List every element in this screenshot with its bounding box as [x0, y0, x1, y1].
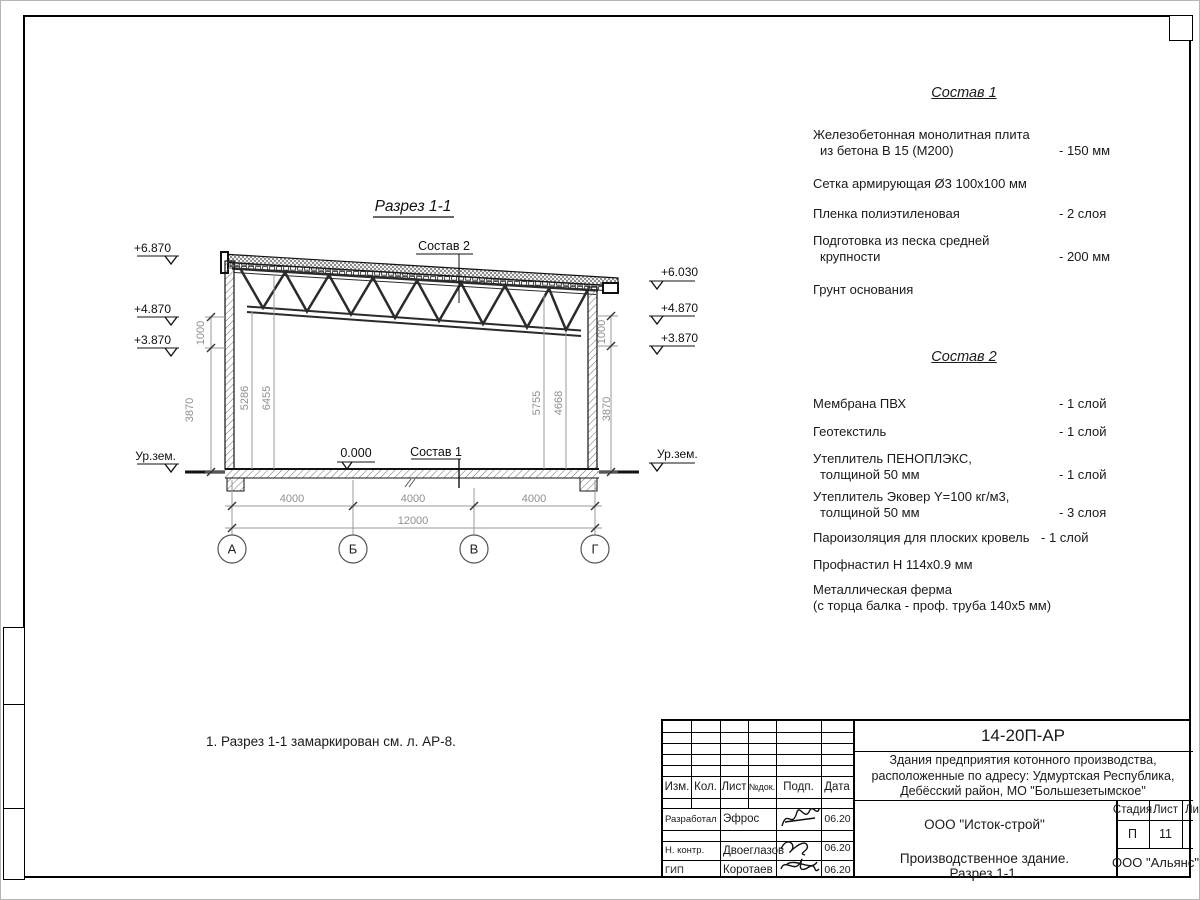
dim-span-1: 4000: [280, 493, 304, 505]
role-razrabotal: Разработал: [665, 808, 720, 830]
dim-left-3870: 3870: [184, 398, 196, 422]
item-line: Железобетонная монолитная плита: [813, 127, 1115, 143]
col-list: Лист: [720, 776, 748, 798]
sostav1-callout-text: Состав 1: [410, 445, 462, 459]
margin-box-3: [3, 808, 25, 880]
right-outer-dimension: 1000 3870: [596, 312, 618, 476]
dim-6455: 6455: [261, 386, 273, 410]
axis-bubbles: А Б В Г: [218, 535, 609, 563]
sostav2-title: Состав 2: [813, 349, 1115, 365]
elev-right-3870: +3.870: [661, 331, 698, 345]
dim-span-3: 4000: [522, 493, 546, 505]
drawing-note: 1. Разрез 1-1 замаркирован см. л. АР-8.: [206, 734, 456, 749]
copy-number-box: [1169, 15, 1193, 41]
date-gip: 06.20: [822, 860, 853, 880]
left-wall: [225, 261, 234, 469]
stage-value: П: [1116, 820, 1149, 848]
list-item: Сетка армирующая Ø3 100х100 мм: [813, 176, 1115, 192]
sostav2-callout-text: Состав 2: [418, 239, 470, 253]
name-gip: Коротаев: [723, 860, 776, 880]
margin-box-1: [3, 627, 25, 706]
col-izm: Изм.: [663, 776, 691, 798]
dim-right-1000: 1000: [596, 320, 608, 344]
sostav2-list: Состав 2 Мембрана ПВХ - 1 слой Геотексти…: [813, 349, 1115, 614]
zero-level-mark: 0.000: [337, 446, 375, 469]
section-title: Разрез 1-1: [373, 198, 454, 217]
project-line: Дебёсский район, МО "Большезетымское": [855, 784, 1191, 800]
customer-org: ООО "Альянс": [1118, 848, 1193, 876]
item-value: - 3 слоя: [1059, 505, 1106, 521]
axis-g: Г: [591, 542, 598, 557]
object-line: Разрез 1-1.: [855, 866, 1114, 881]
item-line: Профнастил Н 114х0.9 мм: [813, 557, 1115, 573]
list-item: Металлическая ферма (с торца балка - про…: [813, 582, 1115, 614]
item-value: - 1 слой: [1059, 424, 1107, 440]
dim-5286: 5286: [239, 386, 251, 410]
list-item: Железобетонная монолитная плита из бетон…: [813, 127, 1115, 159]
list-item: Профнастил Н 114х0.9 мм: [813, 557, 1115, 573]
project-line: расположенные по адресу: Удмуртская Респ…: [855, 769, 1191, 785]
margin-box-2: [3, 704, 25, 810]
item-value: - 200 мм: [1059, 249, 1110, 265]
list-item: Пароизоляция для плоских кровель - 1 сло…: [813, 530, 1115, 546]
elev-left-3870: +3.870: [134, 333, 171, 347]
list-item: Утеплитель Эковер Y=100 кг/м3, толщиной …: [813, 489, 1115, 521]
title-block: Изм. Кол. Лист №док. Подп. Дата Разработ…: [661, 719, 1191, 878]
left-outer-dimension: 1000 3870: [184, 313, 225, 476]
item-value: - 1 слой: [1059, 467, 1107, 483]
item-value: - 1 слой: [1059, 396, 1107, 412]
doc-code: 14-20П-АР: [853, 721, 1193, 751]
project-name: Здания предприятия котонного производств…: [855, 753, 1191, 799]
sostav1-callout: Состав 1: [410, 445, 462, 488]
object-name: Производственное здание. Разрез 1-1.: [855, 851, 1114, 878]
item-value: - 1 слой: [1041, 530, 1089, 546]
ground-label-right: Ур.зем.: [657, 447, 698, 461]
elevation-marks-right: +6.030 +4.870 +3.870 Ур.зем.: [649, 265, 698, 471]
item-line: Утеплитель ПЕНОПЛЭКС,: [813, 451, 1115, 467]
design-org: ООО "Исток-строй": [853, 800, 1116, 848]
item-line: Сетка армирующая Ø3 100х100 мм: [813, 176, 1115, 192]
drawing-sheet: Разрез 1-1: [0, 0, 1200, 900]
role-nkontr: Н. контр.: [665, 841, 720, 860]
item-value: - 150 мм: [1059, 143, 1110, 159]
name-nkontr: Двоеглазов: [723, 841, 776, 860]
elevation-marks-left: +6.870 +4.870 +3.870 Ур.зем.: [134, 241, 179, 472]
item-line: Грунт основания: [813, 282, 1115, 298]
list-item: Грунт основания: [813, 282, 1115, 298]
item-line: (с торца балка - проф. труба 140х5 мм): [813, 598, 1115, 614]
sostav1-list: Состав 1 Железобетонная монолитная плита…: [813, 85, 1115, 298]
section-title-text: Разрез 1-1: [375, 198, 452, 215]
elev-right-6030: +6.030: [661, 265, 698, 279]
item-line: Подготовка из песка средней: [813, 233, 1115, 249]
col-kol: Кол.: [691, 776, 720, 798]
dim-span-2: 4000: [401, 493, 425, 505]
name-razrabotal: Эфрос: [723, 808, 776, 830]
left-foundation: [227, 478, 244, 491]
col-podp: Подп.: [776, 776, 821, 798]
dim-4668: 4668: [553, 391, 565, 415]
signature-razrabotal: [779, 802, 821, 832]
dim-total: 12000: [398, 515, 429, 527]
list-item: Подготовка из песка средней крупности - …: [813, 233, 1115, 265]
col-data: Дата: [821, 776, 853, 798]
sheet-label: Лист: [1149, 800, 1182, 820]
signature-nkontr-gip: [777, 831, 823, 878]
roof-right-end-beam: [603, 283, 618, 293]
right-wall: [588, 287, 597, 469]
zero-level-text: 0.000: [340, 446, 371, 460]
break-mark: [405, 479, 415, 487]
sheet-number: 11: [1149, 820, 1182, 848]
sostav1-title: Состав 1: [813, 85, 1115, 101]
bottom-dimensions: 4000 4000 4000 12000: [225, 480, 602, 535]
role-gip: ГИП: [665, 860, 720, 880]
list-item: Утеплитель ПЕНОПЛЭКС, толщиной 50 мм - 1…: [813, 451, 1115, 483]
object-line: Производственное здание.: [855, 851, 1114, 866]
sheets-label: Листов: [1182, 800, 1200, 820]
stage-label: Стадия: [1116, 800, 1149, 820]
elev-left-4870: +4.870: [134, 302, 171, 316]
axis-b: Б: [349, 542, 358, 557]
date-nkontr: 06.20: [822, 838, 853, 857]
project-line: Здания предприятия котонного производств…: [855, 753, 1191, 769]
date-razrabotal: 06.20: [822, 808, 853, 830]
axis-a: А: [228, 542, 237, 557]
elev-left-6870: +6.870: [134, 241, 171, 255]
inner-dimensions: [252, 276, 566, 469]
list-item: Геотекстиль - 1 слой: [813, 424, 1115, 440]
list-item: Мембрана ПВХ - 1 слой: [813, 396, 1115, 412]
ground-label-left: Ур.зем.: [135, 449, 176, 463]
dim-5755: 5755: [531, 391, 543, 415]
elev-right-4870: +4.870: [661, 301, 698, 315]
item-line: Металлическая ферма: [813, 582, 1115, 598]
floor-slab: [225, 469, 599, 487]
right-foundation: [580, 478, 597, 491]
axis-v: В: [470, 542, 479, 557]
section-drawing: Разрез 1-1: [101, 191, 741, 591]
dim-right-3870: 3870: [601, 397, 613, 421]
dim-left-1000: 1000: [195, 321, 207, 345]
item-line: Утеплитель Эковер Y=100 кг/м3,: [813, 489, 1115, 505]
col-ndok: №док.: [748, 776, 776, 798]
item-value: - 2 слоя: [1059, 206, 1106, 222]
list-item: Пленка полиэтиленовая - 2 слоя: [813, 206, 1115, 222]
